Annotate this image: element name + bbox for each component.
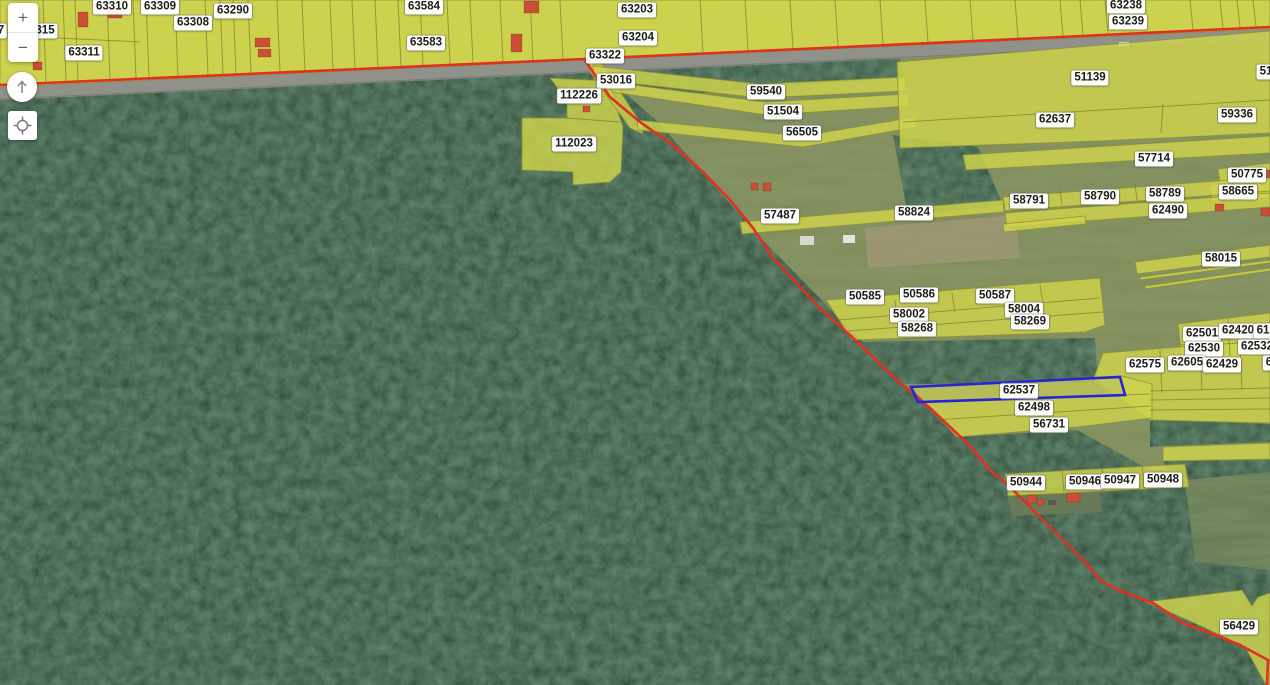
building-marker bbox=[1261, 208, 1270, 216]
map-imagery-layer bbox=[0, 0, 1270, 685]
map-canvas[interactable]: 7315633116331063309633086329063584635836… bbox=[0, 0, 1270, 685]
building-marker bbox=[583, 106, 590, 112]
building-marker bbox=[258, 49, 271, 57]
zoom-in-button[interactable]: + bbox=[8, 3, 38, 33]
building-marker bbox=[1262, 170, 1270, 178]
zoom-control[interactable]: + − bbox=[8, 3, 38, 62]
locate-icon bbox=[13, 116, 32, 135]
building-marker bbox=[562, 93, 569, 100]
building-marker bbox=[255, 38, 270, 47]
north-arrow-icon bbox=[13, 78, 31, 96]
building-marker bbox=[751, 183, 758, 190]
north-arrow-button[interactable] bbox=[7, 72, 37, 102]
building-marker bbox=[1067, 493, 1080, 502]
building-marker bbox=[33, 62, 42, 70]
zoom-out-button[interactable]: − bbox=[8, 33, 38, 62]
building-marker bbox=[763, 183, 771, 191]
building-marker bbox=[1027, 495, 1036, 503]
building-marker bbox=[1037, 499, 1044, 505]
building-marker bbox=[78, 12, 88, 27]
building-marker bbox=[511, 34, 522, 52]
locate-button[interactable] bbox=[8, 111, 37, 140]
building-marker bbox=[108, 7, 122, 18]
building-marker bbox=[1215, 204, 1224, 211]
building-marker bbox=[524, 1, 539, 13]
